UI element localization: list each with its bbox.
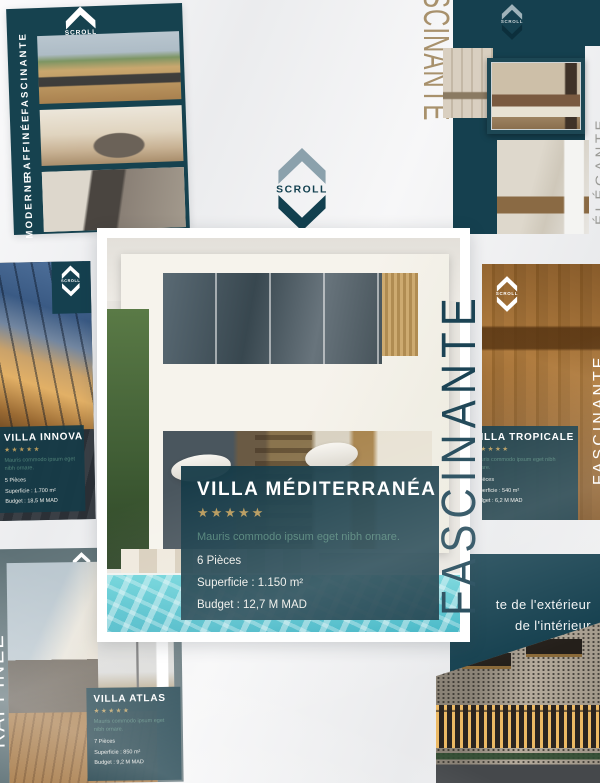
tile-top-right-poster: SCINANTE SCROLL ÉLÉGANTE xyxy=(393,0,600,236)
photo-frame xyxy=(487,58,585,134)
vertical-word-edge: ÉLÉGANTE xyxy=(589,95,600,247)
scroll-logo-main: SCROLL xyxy=(267,148,337,231)
photo-living-room xyxy=(40,105,184,166)
villa-card-tropicale: VILLA TROPICALE ★★★★★ Mauris commodo ips… xyxy=(482,426,578,520)
villa-budget: Budget : 9,2 M MAD xyxy=(94,759,174,766)
greenery xyxy=(107,309,149,569)
vertical-word-fascinante: FASCINANTE xyxy=(12,34,37,113)
villa-title: VILLA MÉDITERRANÉA xyxy=(197,479,423,501)
villa-rooms: 5 Pièces xyxy=(5,477,78,485)
villa-rooms: 7 Pièces xyxy=(94,738,174,745)
villa-area: Superficie : 1.700 m² xyxy=(5,487,78,495)
villa-title: VILLA TROPICALE xyxy=(482,432,571,443)
vertical-word-fascinante-main: FASCINANTE xyxy=(434,258,485,650)
star-rating: ★★★★★ xyxy=(197,505,423,521)
photo-bedroom xyxy=(491,62,581,130)
tile-top-left-poster: SCROLL FASCINANTE RAFFINÉE MODERNE xyxy=(6,3,190,235)
villa-description: Mauris commodo ipsum eget nibh ornare. xyxy=(94,718,174,735)
villa-rooms: 6 Pièces xyxy=(197,555,423,567)
vertical-word-moderne: MODERNE xyxy=(17,178,41,235)
scroll-logo-icon: SCROLL xyxy=(497,4,527,40)
villa-rooms: 5 Pièces xyxy=(482,477,571,483)
star-rating: ★★★★★ xyxy=(94,706,174,715)
vertical-word-edge: FASCINANTE xyxy=(589,322,600,517)
villa-description: Mauris commodo ipsum eget nibh ornare. xyxy=(197,530,423,545)
scroll-logo-icon: SCROLL xyxy=(492,276,522,312)
collage-stage: SCROLL FASCINANTE RAFFINÉE MODERNE SCINA… xyxy=(0,0,600,783)
vertical-word-raffinee: RAFFINÉE xyxy=(15,116,39,175)
photo-bathroom xyxy=(497,140,589,234)
scroll-logo-icon: SCROLL xyxy=(57,265,84,297)
villa-budget: Budget : 12,7 M MAD xyxy=(197,599,423,611)
villa-card-atlas: VILLA ATLAS ★★★★★ Mauris commodo ipsum e… xyxy=(86,687,181,781)
villa-card-innova: VILLA INNOVA ★★★★★ Mauris commodo ipsum … xyxy=(0,425,86,513)
tile-villa-tropicale: SCROLL VILLA TROPICALE ★★★★★ Mauris comm… xyxy=(482,264,600,520)
wood-slats xyxy=(382,273,417,356)
teal-corner xyxy=(585,0,600,46)
villa-budget: Budget : 6,2 M MAD xyxy=(482,498,571,504)
tile-villa-innova: SCROLL VILLA INNOVA ★★★★★ Mauris commodo… xyxy=(0,261,96,521)
villa-area: Superficie : 540 m² xyxy=(482,488,571,494)
villa-description: Mauris commodo ipsum eget nibh ornare. xyxy=(4,456,77,473)
villa-area: Superficie : 850 m² xyxy=(94,749,174,756)
villa-title: VILLA INNOVA xyxy=(4,431,77,444)
villa-budget: Budget : 18,5 M MAD xyxy=(5,498,78,506)
star-rating: ★★★★★ xyxy=(4,444,77,454)
photo-terrace xyxy=(37,31,181,104)
svg-text:SCROLL: SCROLL xyxy=(276,184,328,195)
svg-text:SCROLL: SCROLL xyxy=(501,19,523,24)
photo-interior xyxy=(42,167,186,232)
photo-kitchen xyxy=(443,48,493,118)
teal-corner: SCROLL xyxy=(51,261,91,314)
photo-bathroom-small xyxy=(98,639,175,688)
star-rating: ★★★★★ xyxy=(482,445,571,453)
upper-windows xyxy=(163,273,382,364)
svg-text:SCROLL: SCROLL xyxy=(61,279,80,283)
villa-description: Mauris commodo ipsum eget nibh ornare. xyxy=(482,457,571,473)
svg-text:SCROLL: SCROLL xyxy=(496,291,518,296)
villa-card-mediterranea: VILLA MÉDITERRANÉA ★★★★★ Mauris commodo … xyxy=(181,466,439,620)
villa-area: Superficie : 1.150 m² xyxy=(197,577,423,589)
villa-title: VILLA ATLAS xyxy=(93,693,173,705)
tile-villa-mediterranea: VILLA MÉDITERRANÉA ★★★★★ Mauris commodo … xyxy=(97,228,470,642)
